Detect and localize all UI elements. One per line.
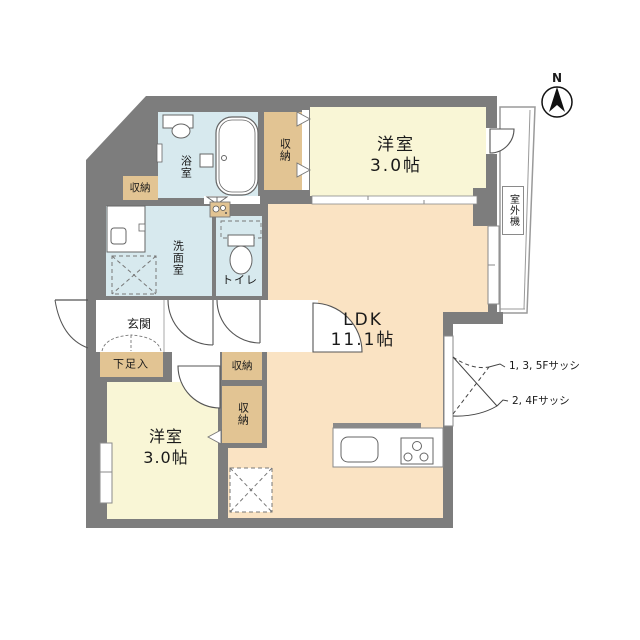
toilet-bowl bbox=[230, 246, 252, 274]
closet-upper-left-label: 収納 bbox=[130, 182, 151, 194]
floorplan-drawing bbox=[0, 0, 640, 640]
water-heater-dial2 bbox=[221, 206, 226, 211]
closet-lower-label: 収納 bbox=[236, 402, 249, 426]
closet-hall-label: 収納 bbox=[232, 360, 253, 372]
water-heater-dial1 bbox=[213, 206, 219, 212]
wall-pillar bbox=[473, 188, 497, 226]
kitchen-sink bbox=[341, 437, 378, 462]
outdoor-unit-label: 室外機 bbox=[506, 194, 521, 227]
shoe-cabinet-label: 下足入 bbox=[113, 359, 149, 372]
bath-label: 浴室 bbox=[179, 155, 192, 179]
outdoor-unit-box: 室外機 bbox=[502, 186, 524, 235]
toilet-tank bbox=[228, 235, 254, 246]
bath-sink bbox=[172, 124, 190, 138]
bedroom-lower-name: 洋室 bbox=[149, 428, 183, 446]
toilet-label: トイレ bbox=[222, 275, 258, 288]
entrance-label: 玄関 bbox=[127, 318, 151, 332]
kitchen-counter-edge bbox=[333, 423, 421, 428]
bath-mirror bbox=[157, 144, 162, 162]
sash-lower-annotation: 2, 4Fサッシ bbox=[512, 395, 570, 407]
vanity-handle bbox=[139, 224, 145, 231]
sash-window bbox=[444, 336, 453, 426]
bedroom-lower-size: 3.0帖 bbox=[143, 449, 188, 467]
sash-upper-annotation: 1, 3, 5Fサッシ bbox=[509, 360, 580, 372]
entrance-door-arc bbox=[55, 300, 88, 348]
bathtub-drain bbox=[222, 156, 227, 161]
bedroom-upper-name: 洋室 bbox=[377, 136, 415, 156]
compass-north-label: N bbox=[552, 72, 562, 86]
washroom-label: 洗面室 bbox=[171, 240, 184, 276]
refrigerator-space bbox=[230, 468, 272, 512]
bedroom-upper-size: 3.0帖 bbox=[370, 157, 422, 177]
sliding-door-strip bbox=[312, 196, 477, 204]
vanity-bowl bbox=[111, 228, 126, 244]
bath-stool bbox=[200, 154, 213, 167]
ldk-size: 11.1帖 bbox=[331, 331, 396, 351]
wall-step bbox=[443, 312, 503, 324]
sash-swing-diagram bbox=[453, 357, 508, 416]
bedroom-lower-window bbox=[100, 443, 112, 503]
closet-upper-center-label: 収納 bbox=[278, 138, 291, 162]
floorplan-canvas: 浴室 収納 収納 洋室 3.0帖 洗面室 トイレ LDK 11.1帖 玄関 下足… bbox=[0, 0, 640, 640]
ldk-name: LDK bbox=[343, 311, 383, 331]
water-heater-dot bbox=[225, 212, 227, 214]
